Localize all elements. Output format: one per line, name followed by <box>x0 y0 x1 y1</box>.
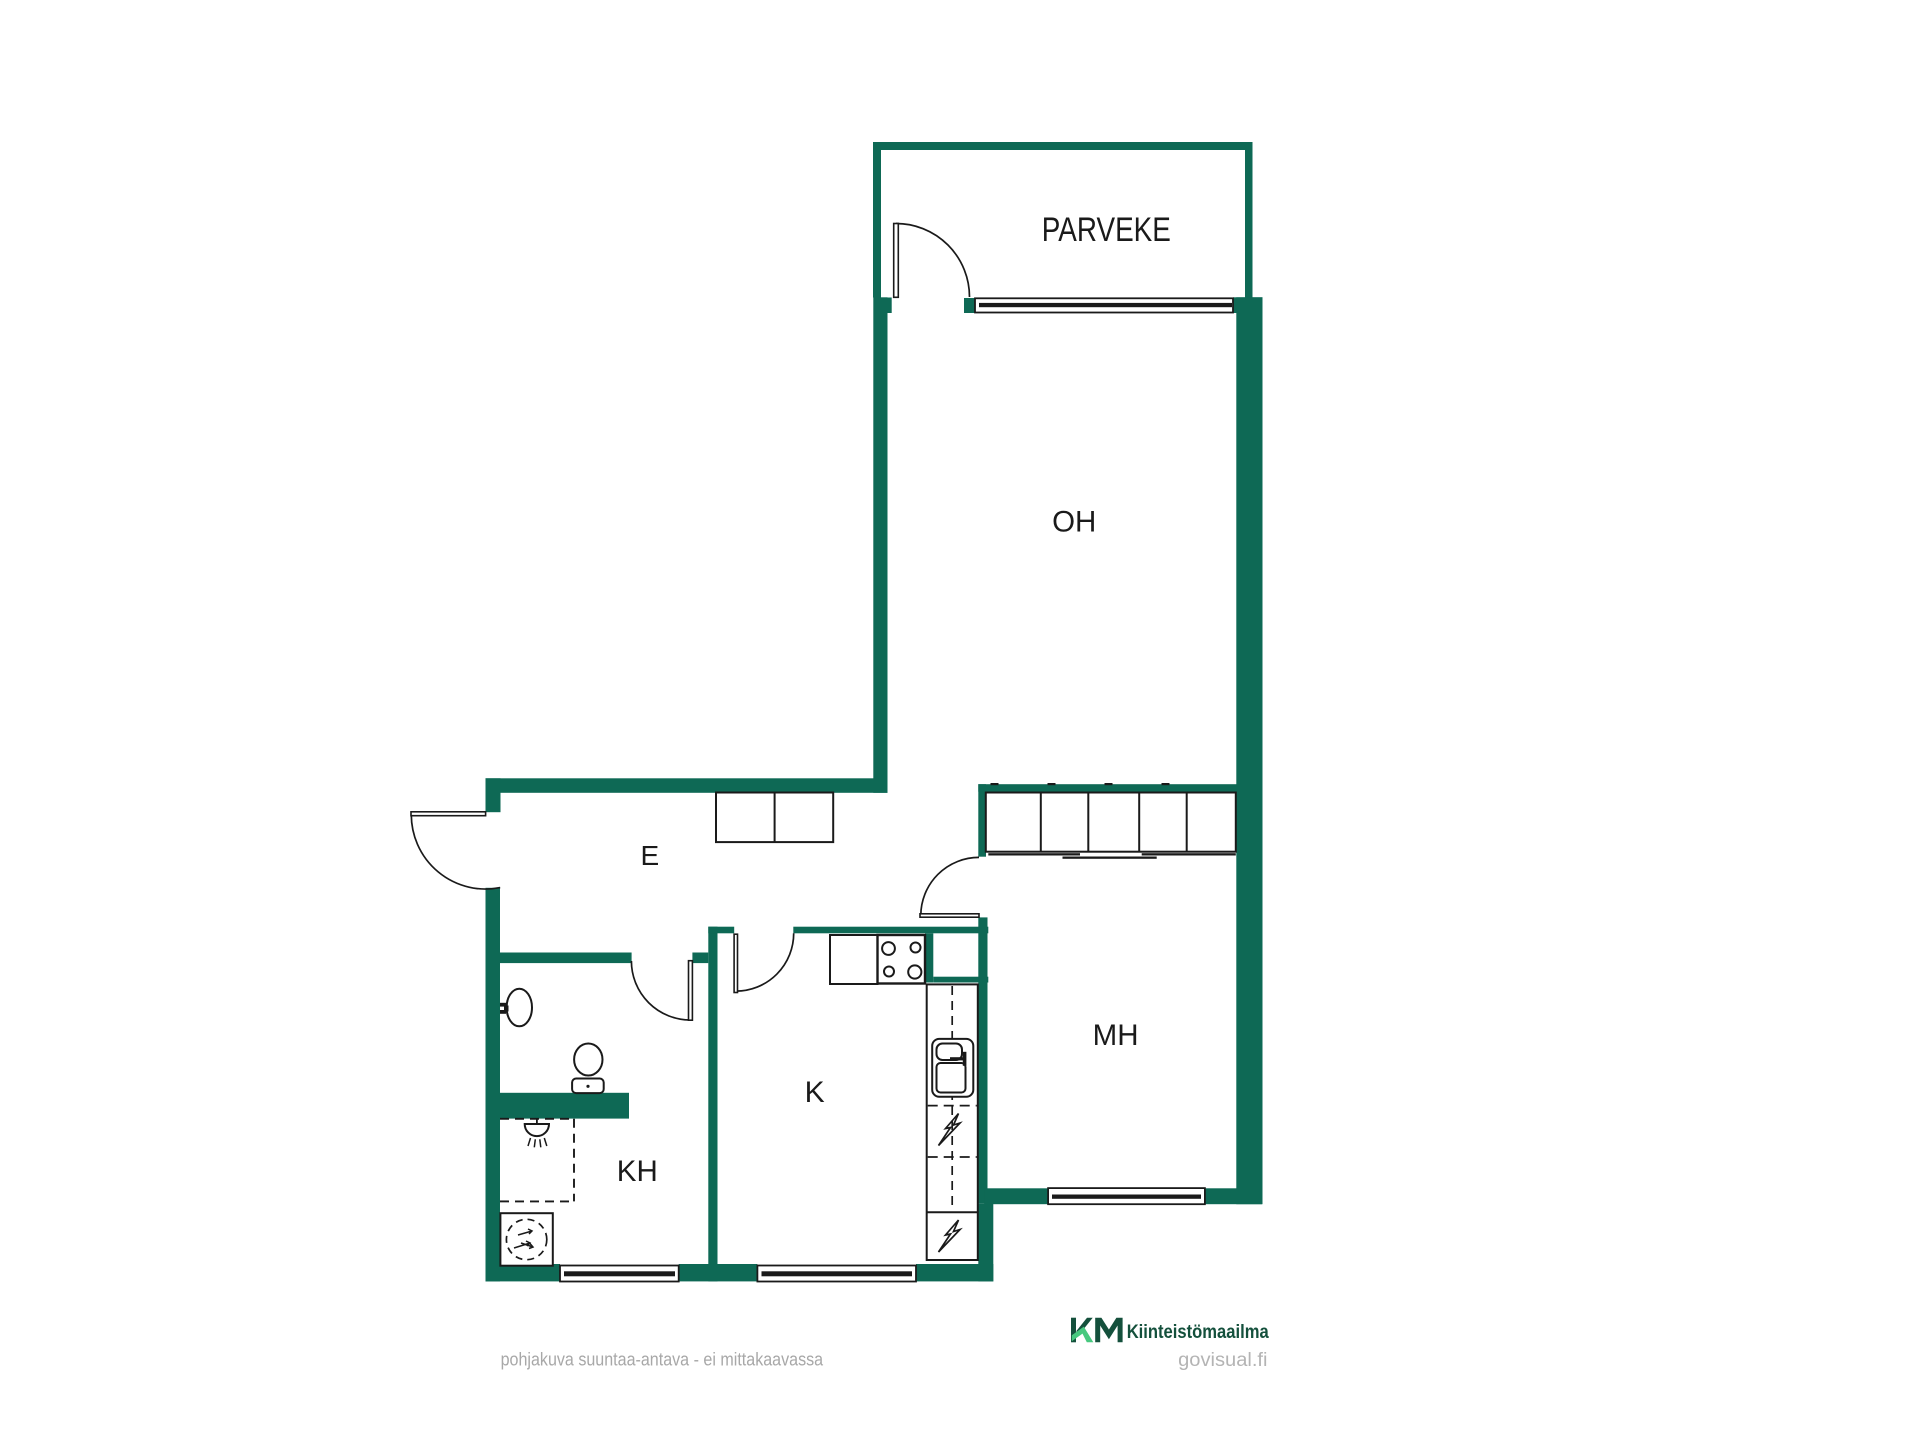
svg-text:PARVEKE: PARVEKE <box>1042 211 1171 249</box>
svg-text:MH: MH <box>1093 1019 1139 1052</box>
svg-text:K: K <box>805 1076 825 1109</box>
svg-text:pohjakuva suuntaa-antava - ei: pohjakuva suuntaa-antava - ei mittakaava… <box>501 1349 824 1369</box>
svg-text:E: E <box>640 840 659 871</box>
svg-text:OH: OH <box>1052 505 1096 538</box>
svg-text:govisual.fi: govisual.fi <box>1178 1350 1267 1371</box>
svg-text:KH: KH <box>617 1155 658 1188</box>
svg-text:Kiinteistömaailma: Kiinteistömaailma <box>1127 1322 1269 1343</box>
